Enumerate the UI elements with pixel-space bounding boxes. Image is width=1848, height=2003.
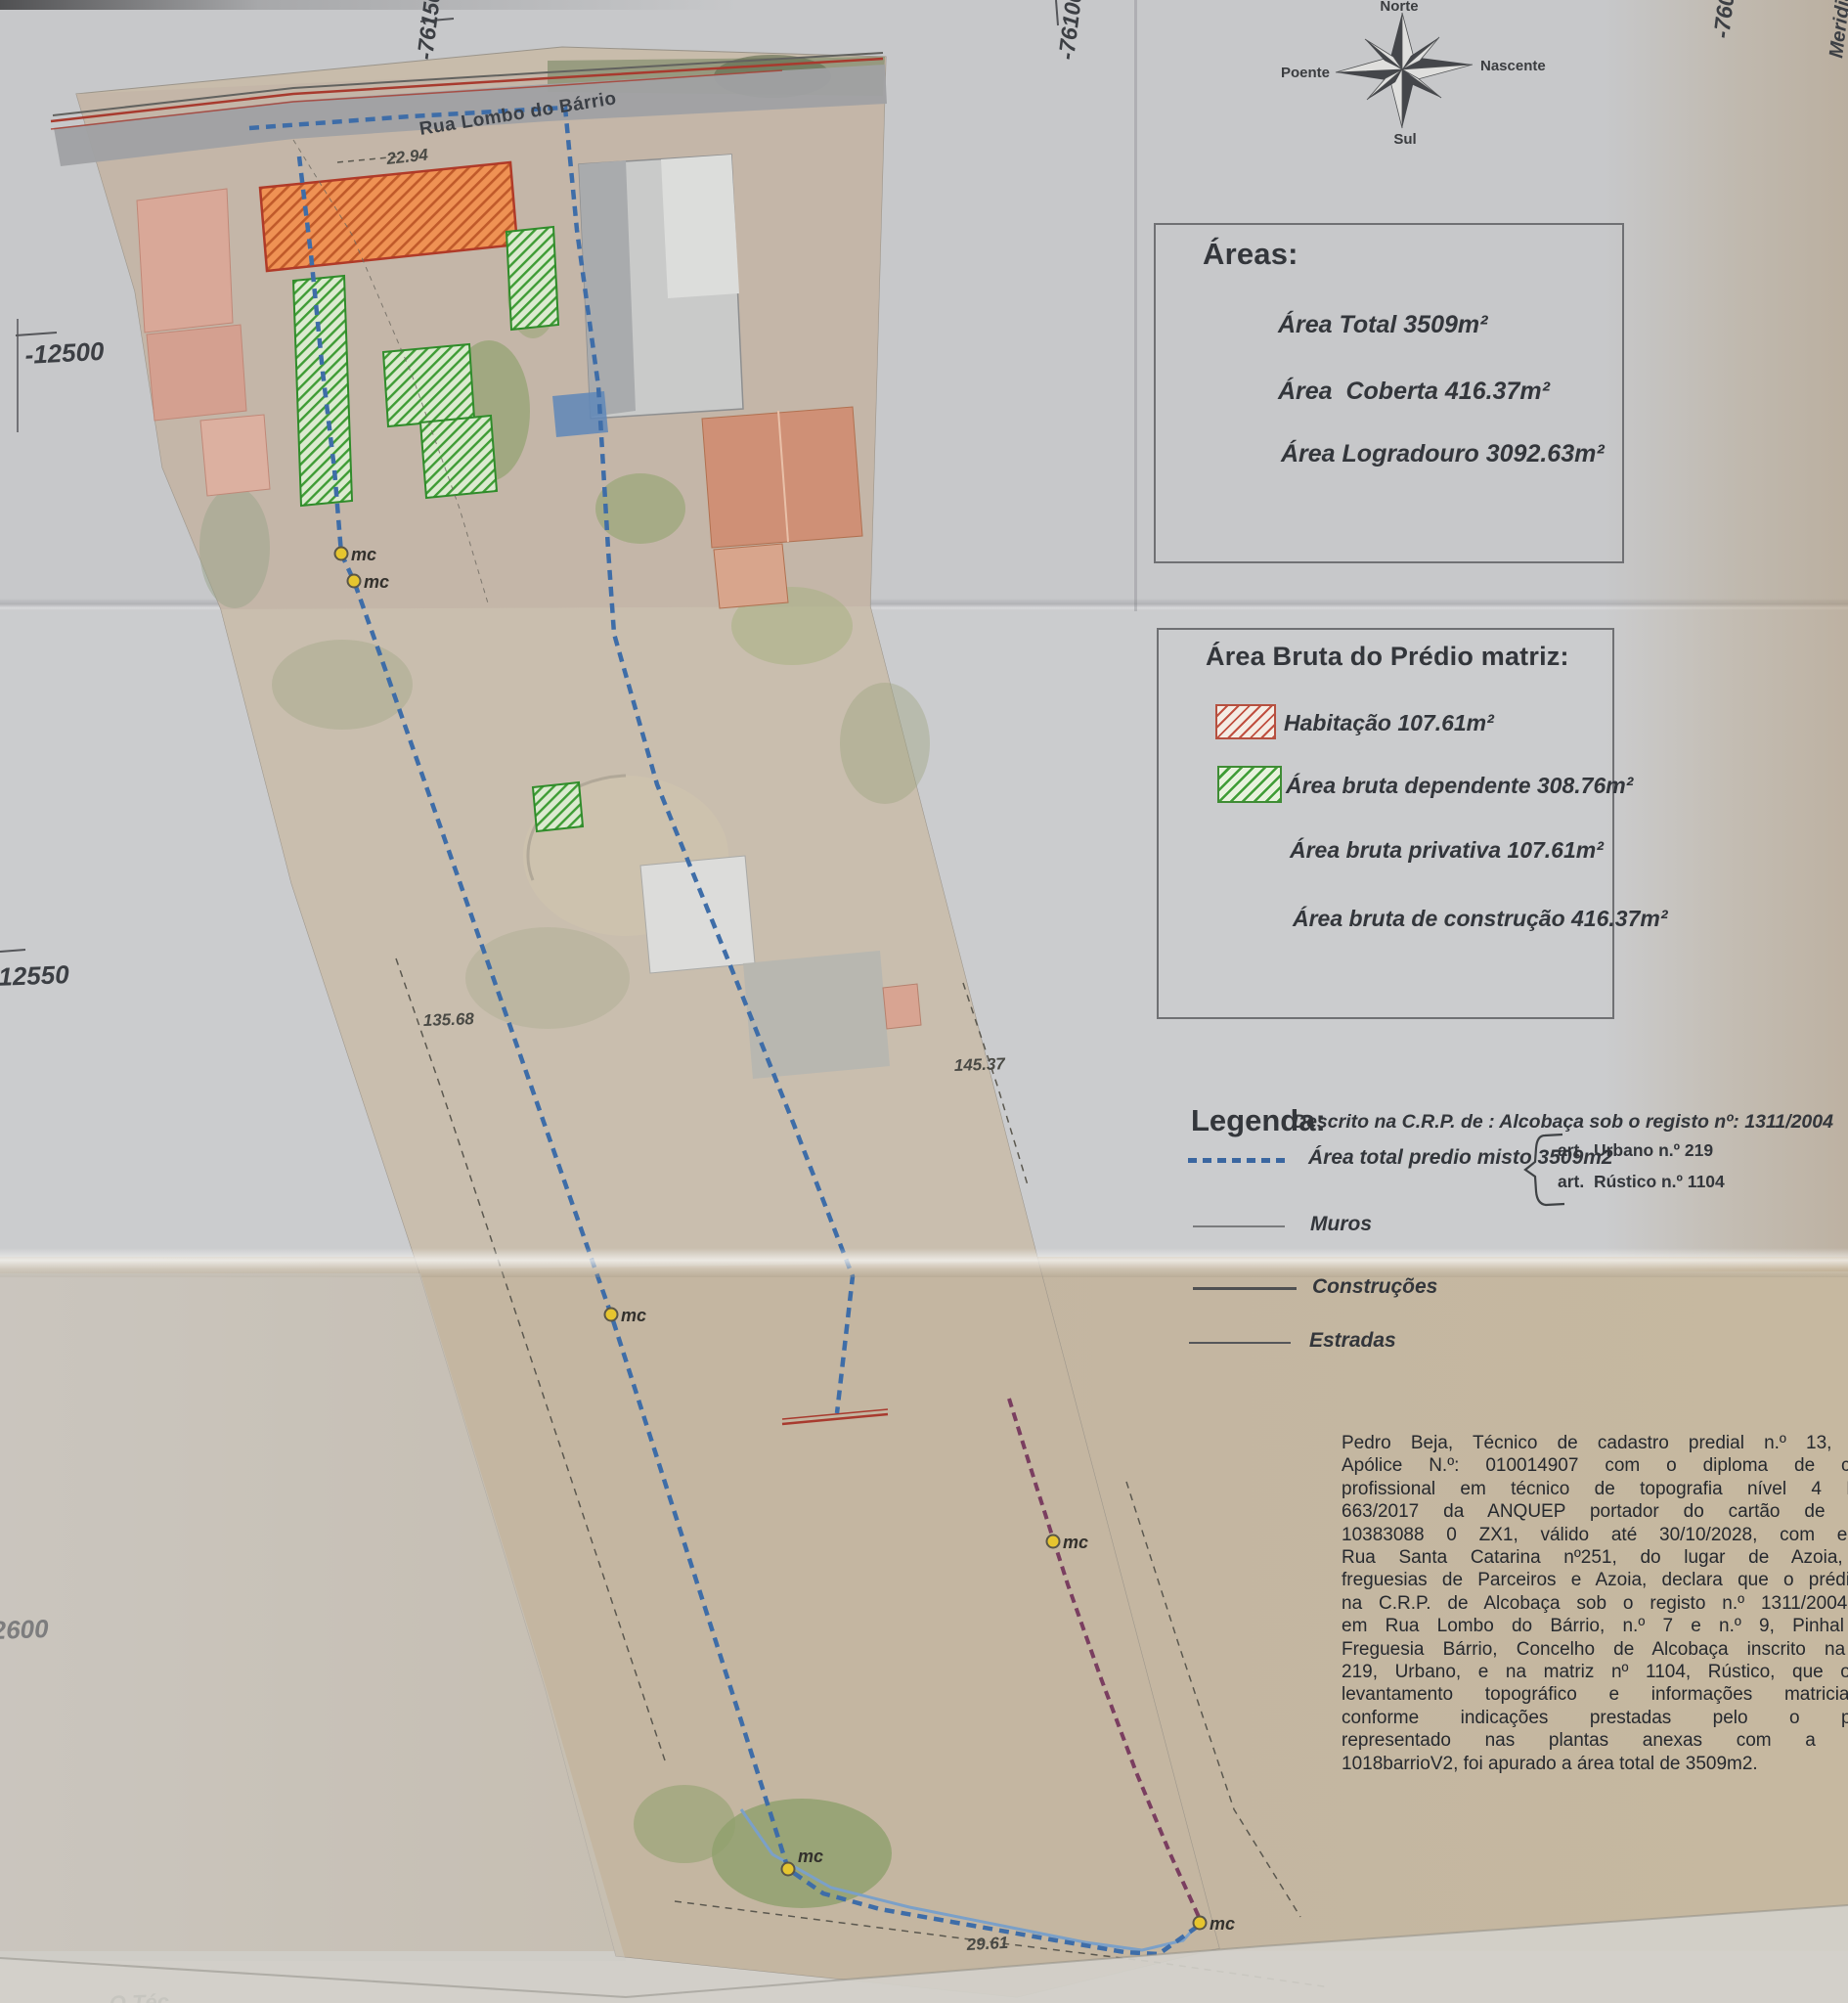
gross-area-box-title: Área Bruta do Prédio matriz: xyxy=(1206,642,1569,672)
building-dependente-hatched xyxy=(506,227,558,330)
building-dependente-hatched xyxy=(293,276,352,506)
dependente-hatch-swatch xyxy=(1217,766,1282,803)
construcao-label: Área bruta de construção 416.37m² xyxy=(1293,906,1667,932)
building-pink xyxy=(200,415,270,496)
areas-box: Áreas: Área Total 3509m² Área Coberta 41… xyxy=(1154,223,1624,563)
declaration-line: Apólice N.º: 010014907 com o diploma de … xyxy=(1342,1454,1848,1477)
measurement-south: 29.61 xyxy=(965,1934,1008,1954)
compass-label-west: Poente xyxy=(1281,65,1330,81)
legend-estradas-swatch xyxy=(1189,1342,1291,1344)
vegetation xyxy=(840,683,930,804)
declaration-line: na C.R.P. de Alcobaça sob o registo n.º … xyxy=(1342,1592,1848,1615)
mc-label: mc xyxy=(364,572,389,592)
building-salmon xyxy=(714,544,788,608)
grid-tick xyxy=(0,950,25,952)
measurement-west: 135.68 xyxy=(422,1009,474,1030)
legend-art-urbano: art. Urbano n.º 219 xyxy=(1558,1140,1713,1161)
declaration-line: 10383088 0 ZX1, válido até 30/10/2028, c… xyxy=(1342,1524,1848,1546)
grid-label-left-lower: 2600 xyxy=(0,1614,50,1645)
declaration-line: freguesias de Parceiros e Azoia, declara… xyxy=(1342,1569,1848,1591)
mc-marker xyxy=(1047,1536,1060,1548)
declaration-line: conforme indicações prestadas pelo o pro… xyxy=(1342,1707,1848,1729)
declaration-line: profissional em técnico de topografia ní… xyxy=(1342,1478,1848,1500)
declaration-line: em Rua Lombo do Bárrio, n.º 7 e n.º 9, P… xyxy=(1342,1615,1848,1637)
legend-muros-label: Muros xyxy=(1310,1213,1372,1236)
building-grey-roof-light xyxy=(661,155,739,298)
declaration-line: Pedro Beja, Técnico de cadastro predial … xyxy=(1342,1432,1848,1454)
privativa-label: Área bruta privativa 107.61m² xyxy=(1290,837,1604,864)
building-pink xyxy=(147,325,246,421)
declaration-line: 219, Urbano, e na matriz nº 1104, Rústic… xyxy=(1342,1661,1848,1683)
compass-label-south: Sul xyxy=(1393,131,1416,148)
declaration-line: representado nas plantas anexas com a de… xyxy=(1342,1729,1848,1752)
compass-label-east: Nascente xyxy=(1480,58,1546,74)
gross-area-box: Área Bruta do Prédio matriz: Habitação 1… xyxy=(1157,628,1614,1019)
grid-label-top-middle: -76100 xyxy=(1053,0,1087,62)
grid-label-left-middle: -12550 xyxy=(0,959,70,992)
mc-label: mc xyxy=(798,1847,823,1866)
building-dependente-hatched xyxy=(383,344,474,426)
grid-label-left-upper: -12500 xyxy=(24,336,106,370)
declaration-paragraph: Pedro Beja, Técnico de cadastro predial … xyxy=(1342,1432,1848,1775)
area-total: Área Total 3509m² xyxy=(1278,311,1487,339)
measurement-east: 145.37 xyxy=(953,1054,1006,1075)
declaration-line: 1018barrioV2, foi apurado a área total d… xyxy=(1342,1753,1848,1775)
habitacao-hatch-swatch xyxy=(1215,704,1276,739)
areas-box-title: Áreas: xyxy=(1203,237,1298,272)
mc-label: mc xyxy=(351,545,376,564)
building-shed-pink xyxy=(883,984,921,1029)
vegetation xyxy=(634,1785,735,1863)
building-white xyxy=(640,856,755,973)
building-dependente-hatched xyxy=(420,416,497,498)
mc-label: mc xyxy=(621,1306,646,1325)
building-dependente-hatched xyxy=(533,782,583,831)
declaration-line: Rua Santa Catarina nº251, do lugar de Az… xyxy=(1342,1546,1848,1569)
mc-marker xyxy=(348,575,361,588)
mc-label: mc xyxy=(1063,1533,1088,1552)
mc-label: mc xyxy=(1210,1914,1235,1934)
mc-marker xyxy=(335,548,348,560)
building-salmon xyxy=(702,407,862,548)
compass-label-north: Norte xyxy=(1380,0,1418,15)
legend-estradas-label: Estradas xyxy=(1309,1329,1396,1353)
legend-art-rustico: art. Rústico n.º 1104 xyxy=(1558,1172,1725,1192)
grid-label-meridian: Meridia xyxy=(1826,0,1848,60)
declaration-line: levantamento topográfico e informações m… xyxy=(1342,1683,1848,1706)
grid-tick xyxy=(16,333,57,335)
legend-construcoes-label: Construções xyxy=(1312,1275,1437,1299)
grid-label-top-left: -76150 xyxy=(412,0,446,62)
compass-rose: Norte Sul Poente Nascente xyxy=(1281,0,1546,148)
legend-dashed-blue-swatch xyxy=(1188,1158,1290,1163)
declaration-line: Freguesia Bárrio, Concelho de Alcobaça i… xyxy=(1342,1638,1848,1661)
area-coberta: Área Coberta 416.37m² xyxy=(1278,378,1550,406)
legend-muros-swatch xyxy=(1193,1225,1285,1227)
legend-construcoes-swatch xyxy=(1193,1287,1297,1290)
scanned-cadastral-plan: mc mc mc mc mc mc 22.94 135.68 145.37 29… xyxy=(0,0,1848,2003)
vegetation xyxy=(465,927,630,1029)
mc-marker xyxy=(782,1863,795,1876)
mc-marker xyxy=(1194,1917,1207,1930)
building-pink xyxy=(137,189,233,333)
habitacao-label: Habitação 107.61m² xyxy=(1284,710,1494,736)
vegetation xyxy=(595,473,685,544)
declaration-line: 663/2017 da ANQUEP portador do cartão de… xyxy=(1342,1500,1848,1523)
mc-marker xyxy=(605,1309,618,1321)
vegetation xyxy=(199,487,270,608)
dependente-label: Área bruta dependente 308.76m² xyxy=(1286,773,1633,799)
concrete-pad xyxy=(743,951,890,1079)
signature-partial: O Téc xyxy=(109,1989,169,2003)
area-logradouro: Área Logradouro 3092.63m² xyxy=(1281,440,1605,468)
grid-label-top-right: -760 xyxy=(1708,0,1738,40)
